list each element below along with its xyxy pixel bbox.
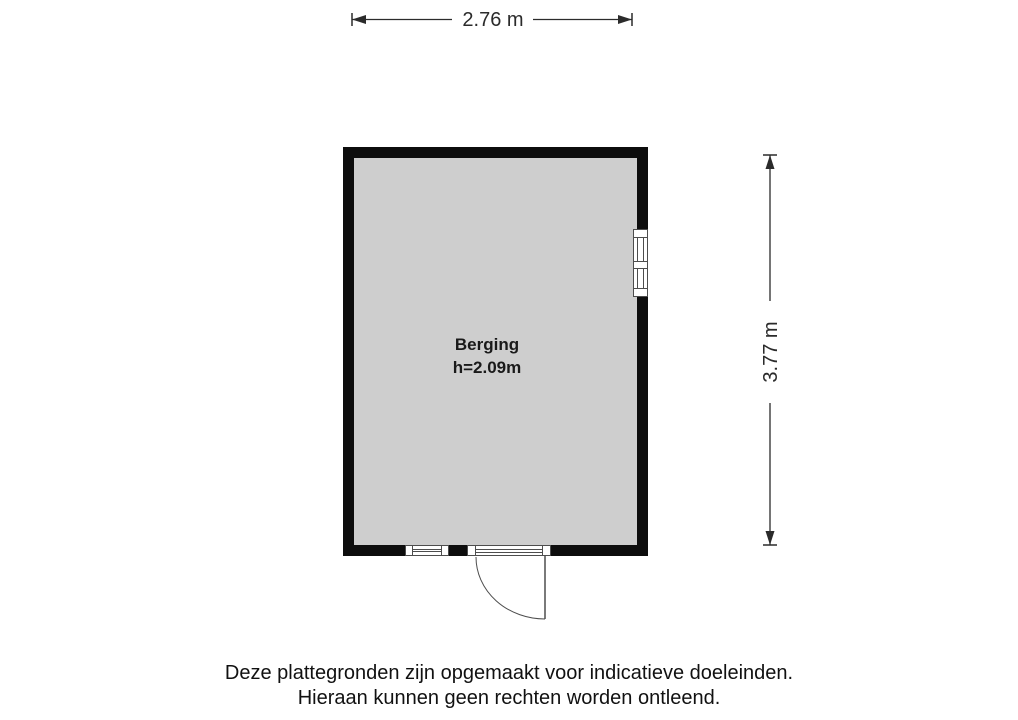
door-swing (476, 556, 545, 619)
width-dimension-label: 2.76 m (462, 10, 523, 30)
height-dimension-label: 3.77 m (761, 321, 781, 382)
room-name: Berging (453, 333, 522, 356)
disclaimer-text: Deze plattegronden zijn opgemaakt voor i… (225, 661, 793, 711)
arrow-right-icon (618, 15, 632, 24)
arrow-left-icon (352, 15, 366, 24)
door-swing-arc (476, 557, 545, 619)
room-ceiling-height: h=2.09m (453, 356, 522, 379)
arrow-up-icon (766, 155, 775, 169)
floorplan-canvas: 2.76 m 3.77 m Berging h=2.09m Deze platt… (0, 0, 1018, 720)
disclaimer-line-1: Deze plattegronden zijn opgemaakt voor i… (225, 661, 793, 686)
disclaimer-line-2: Hieraan kunnen geen rechten worden ontle… (225, 686, 793, 711)
room-label: Berging h=2.09m (453, 333, 522, 379)
arrow-down-icon (766, 531, 775, 545)
